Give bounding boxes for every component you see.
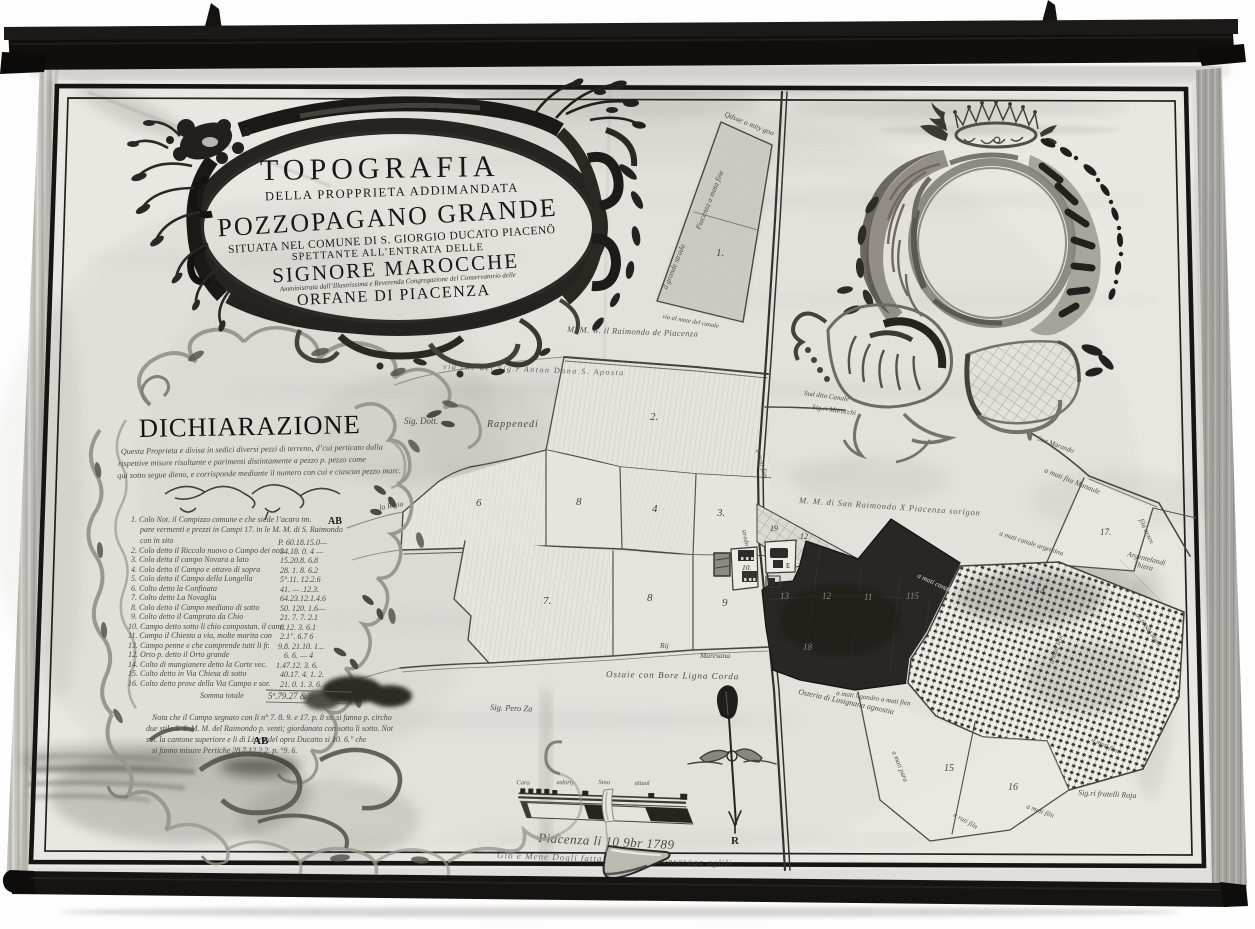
svg-text:8. Colo detto il Campo mediano: 8. Colo detto il Campo mediano di sotto	[131, 603, 259, 612]
svg-text:40.17. 4. 1. 2.: 40.17. 4. 1. 2.	[280, 670, 324, 679]
svg-text:R: R	[731, 835, 740, 847]
svg-text:13. Campo penne e che comprend: 13. Campo penne e che comprende tutti li…	[128, 641, 270, 650]
svg-text:2. Colo detto il Riccolo nuovo: 2. Colo detto il Riccolo nuovo o Campo d…	[131, 546, 285, 555]
svg-text:9.8. 21.10. 1...: 9.8. 21.10. 1...	[278, 642, 324, 651]
svg-text:DICHIARAZIONE: DICHIARAZIONE	[139, 409, 362, 443]
svg-text:15.20.8. 6.8: 15.20.8. 6.8	[280, 556, 318, 565]
svg-text:del opra Ducatto si 10. 6.″ ch: del opra Ducatto si 10. 6.″ che	[268, 735, 367, 744]
svg-text:15: 15	[944, 763, 954, 774]
svg-text:5. Colo detto il Campo della L: 5. Colo detto il Campo della Longella	[131, 574, 253, 583]
svg-text:15. Colto detto in Via Chiesa: 15. Colto detto in Via Chiesa di sotto	[128, 669, 247, 678]
svg-text:3.: 3.	[716, 507, 725, 519]
svg-text:Cara: Cara	[516, 779, 530, 786]
svg-text:due stile S. S. M. M. del Raim: due stile S. S. M. M. del Raimondo p. ve…	[146, 724, 394, 733]
svg-text:1. Colo Not. il Compizzo comun: 1. Colo Not. il Compizzo comune e che si…	[131, 515, 311, 524]
svg-text:12: 12	[822, 591, 832, 601]
svg-text:11: 11	[864, 592, 872, 602]
svg-text:Somma totale: Somma totale	[200, 691, 244, 700]
svg-text:7.: 7.	[543, 595, 551, 607]
svg-text:Sig. Pero Za: Sig. Pero Za	[490, 702, 533, 713]
svg-text:6. Colto detto la Confinata: 6. Colto detto la Confinata	[131, 584, 217, 593]
svg-text:14: 14	[1035, 586, 1045, 597]
svg-text:6. 6. — 4: 6. 6. — 4	[284, 651, 313, 660]
svg-text:12: 12	[800, 532, 808, 541]
svg-text:41. — .12.3.: 41. — .12.3.	[280, 585, 319, 594]
svg-text:pare vermenti e prezzi in Camp: pare vermenti e prezzi in Campi 17. in l…	[139, 525, 343, 534]
svg-text:16. Colto detto prove della Vi: 16. Colto detto prove della Via Campo e …	[128, 679, 270, 688]
svg-text:28. 1. 8. 6.2: 28. 1. 8. 6.2	[280, 566, 318, 575]
svg-text:4: 4	[652, 503, 658, 515]
svg-text:Nota che il Campo segnato con: Nota che il Campo segnato con li n° 7. 8…	[151, 713, 392, 722]
svg-text:14. Colto di mangianere detto: 14. Colto di mangianere detto la Corte v…	[128, 660, 267, 669]
svg-text:5°.11. 12.2.6: 5°.11. 12.2.6	[280, 575, 321, 584]
svg-text:9. Colto detto il Camprato da: 9. Colto detto il Camprato da Chio	[131, 612, 243, 621]
svg-text:50. 120. 1.6—: 50. 120. 1.6—	[280, 604, 326, 613]
svg-text:12. Orto p. detto il Orto gran: 12. Orto p. detto il Orto grande	[128, 650, 230, 659]
svg-text:3. Colo detta il campo Novara: 3. Colo detta il campo Novara a lato	[130, 555, 249, 564]
svg-text:8: 8	[576, 496, 582, 508]
svg-text:18: 18	[803, 642, 813, 652]
svg-text:1.47.12. 3. 6.: 1.47.12. 3. 6.	[276, 661, 318, 670]
svg-text:con in sito: con in sito	[140, 536, 173, 545]
svg-text:16: 16	[1008, 782, 1018, 793]
svg-text:4. Colo detto il Campo e ottav: 4. Colo detto il Campo e ottavo di sopra	[131, 565, 260, 574]
svg-text:Rij: Rij	[659, 641, 669, 650]
svg-text:8: 8	[647, 592, 653, 604]
svg-text:19: 19	[770, 524, 778, 533]
svg-text:Rappenedi: Rappenedi	[486, 419, 539, 430]
svg-text:si fanno misure Pertiche 28.7.: si fanno misure Pertiche 28.7.12.2.2. p.…	[152, 746, 297, 755]
svg-text:21. 0. 1. 3. 6.: 21. 0. 1. 3. 6.	[280, 680, 322, 689]
svg-text:Sino: Sino	[598, 779, 610, 786]
svg-text:attual: attual	[634, 780, 650, 787]
svg-text:17.: 17.	[1100, 527, 1111, 537]
svg-text:sol. la cantone superiore e li: sol. la cantone superiore e li di Linea	[146, 735, 266, 744]
svg-text:E: E	[786, 562, 790, 570]
svg-text:6: 6	[476, 497, 482, 509]
svg-text:34.18. 0. 4 —: 34.18. 0. 4 —	[279, 547, 324, 556]
svg-text:1.: 1.	[716, 247, 724, 259]
svg-text:11. Campo il Chiesto a via, mo: 11. Campo il Chiesto a via, molte marita…	[128, 631, 272, 640]
svg-text:13: 13	[780, 591, 790, 601]
svg-text:2.1″. 6.7 6: 2.1″. 6.7 6	[280, 632, 313, 641]
svg-text:8.12. 3. 6.1: 8.12. 3. 6.1	[280, 623, 316, 632]
svg-text:115: 115	[906, 591, 919, 601]
svg-text:2.: 2.	[650, 411, 658, 423]
svg-text:9: 9	[722, 597, 728, 609]
svg-text:Maresana: Maresana	[699, 651, 730, 660]
svg-text:64.23.12.1.4.6: 64.23.12.1.4.6	[280, 594, 326, 603]
svg-text:Sig. Dott.: Sig. Dott.	[404, 416, 438, 426]
svg-text:10.: 10.	[742, 563, 752, 572]
svg-text:7. Colto detto La Novaglia: 7. Colto detto La Novaglia	[131, 593, 217, 602]
svg-text:10. Campo detto sotto li chio: 10. Campo detto sotto li chio compostan.…	[128, 622, 283, 631]
svg-text:21. 7. 7. 2.1: 21. 7. 7. 2.1	[280, 613, 318, 622]
svg-text:5ª.79.27 & 6...: 5ª.79.27 & 6...	[268, 691, 320, 701]
